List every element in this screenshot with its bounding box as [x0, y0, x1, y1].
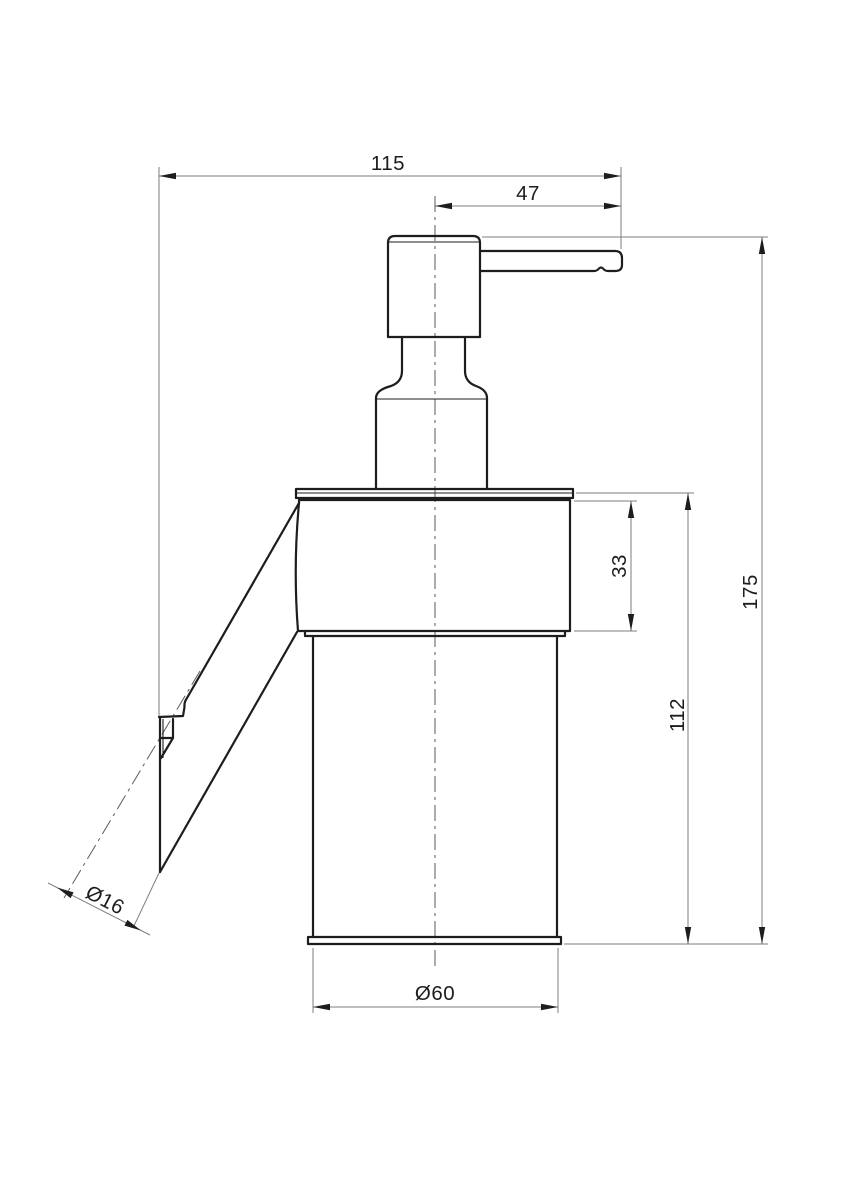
- arrow-175-top: [759, 237, 765, 254]
- arrow-115-left: [159, 173, 176, 179]
- dispenser-outline: [159, 236, 622, 944]
- arrow-175-bottom: [759, 927, 765, 944]
- bracket-axis-center-line: [64, 671, 200, 898]
- bottle-bottom-rim: [308, 937, 561, 944]
- pump-neck-collar-outline: [376, 337, 487, 489]
- arrow-33-bottom: [628, 614, 634, 631]
- spout-outline: [480, 251, 622, 271]
- arrow-115-right: [604, 173, 621, 179]
- technical-drawing-page: 115 47 33 175 112 Ø16 Ø60: [0, 0, 849, 1200]
- arrow-112-top: [685, 493, 691, 510]
- pump-cap-outline: [388, 236, 480, 337]
- dim-label-mount-diameter: Ø16: [82, 881, 128, 920]
- arrow-60-right: [541, 1004, 558, 1010]
- dim-label-holder-height: 33: [608, 554, 631, 578]
- arrow-16-lower: [124, 920, 141, 931]
- dim-label-total-height: 175: [739, 574, 762, 610]
- arrow-47-left: [435, 203, 452, 209]
- dim-label-body-height: 112: [666, 698, 689, 732]
- arrow-112-bottom: [685, 927, 691, 944]
- center-lines: [64, 196, 435, 968]
- bracket-arm-top-edge: [159, 503, 299, 717]
- ext-line-mount-lower: [133, 873, 159, 928]
- bracket-arm-bottom-edge: [160, 632, 297, 872]
- arrow-33-top: [628, 501, 634, 518]
- wall-plate-step: [160, 719, 173, 758]
- dim-label-body-diameter: Ø60: [415, 982, 455, 1005]
- extension-lines: [133, 167, 768, 1013]
- soap-dispenser-dimension-drawing: 115 47 33 175 112 Ø16 Ø60: [0, 0, 849, 1200]
- dimension-arrows: [57, 173, 765, 1010]
- dimension-labels: 115 47 33 175 112 Ø16 Ø60: [82, 152, 762, 1005]
- arrow-60-left: [313, 1004, 330, 1010]
- arrow-47-right: [604, 203, 621, 209]
- holder-ring-outline: [296, 500, 570, 631]
- dim-label-spout-projection: 47: [516, 182, 540, 205]
- dim-label-total-width: 115: [371, 152, 405, 175]
